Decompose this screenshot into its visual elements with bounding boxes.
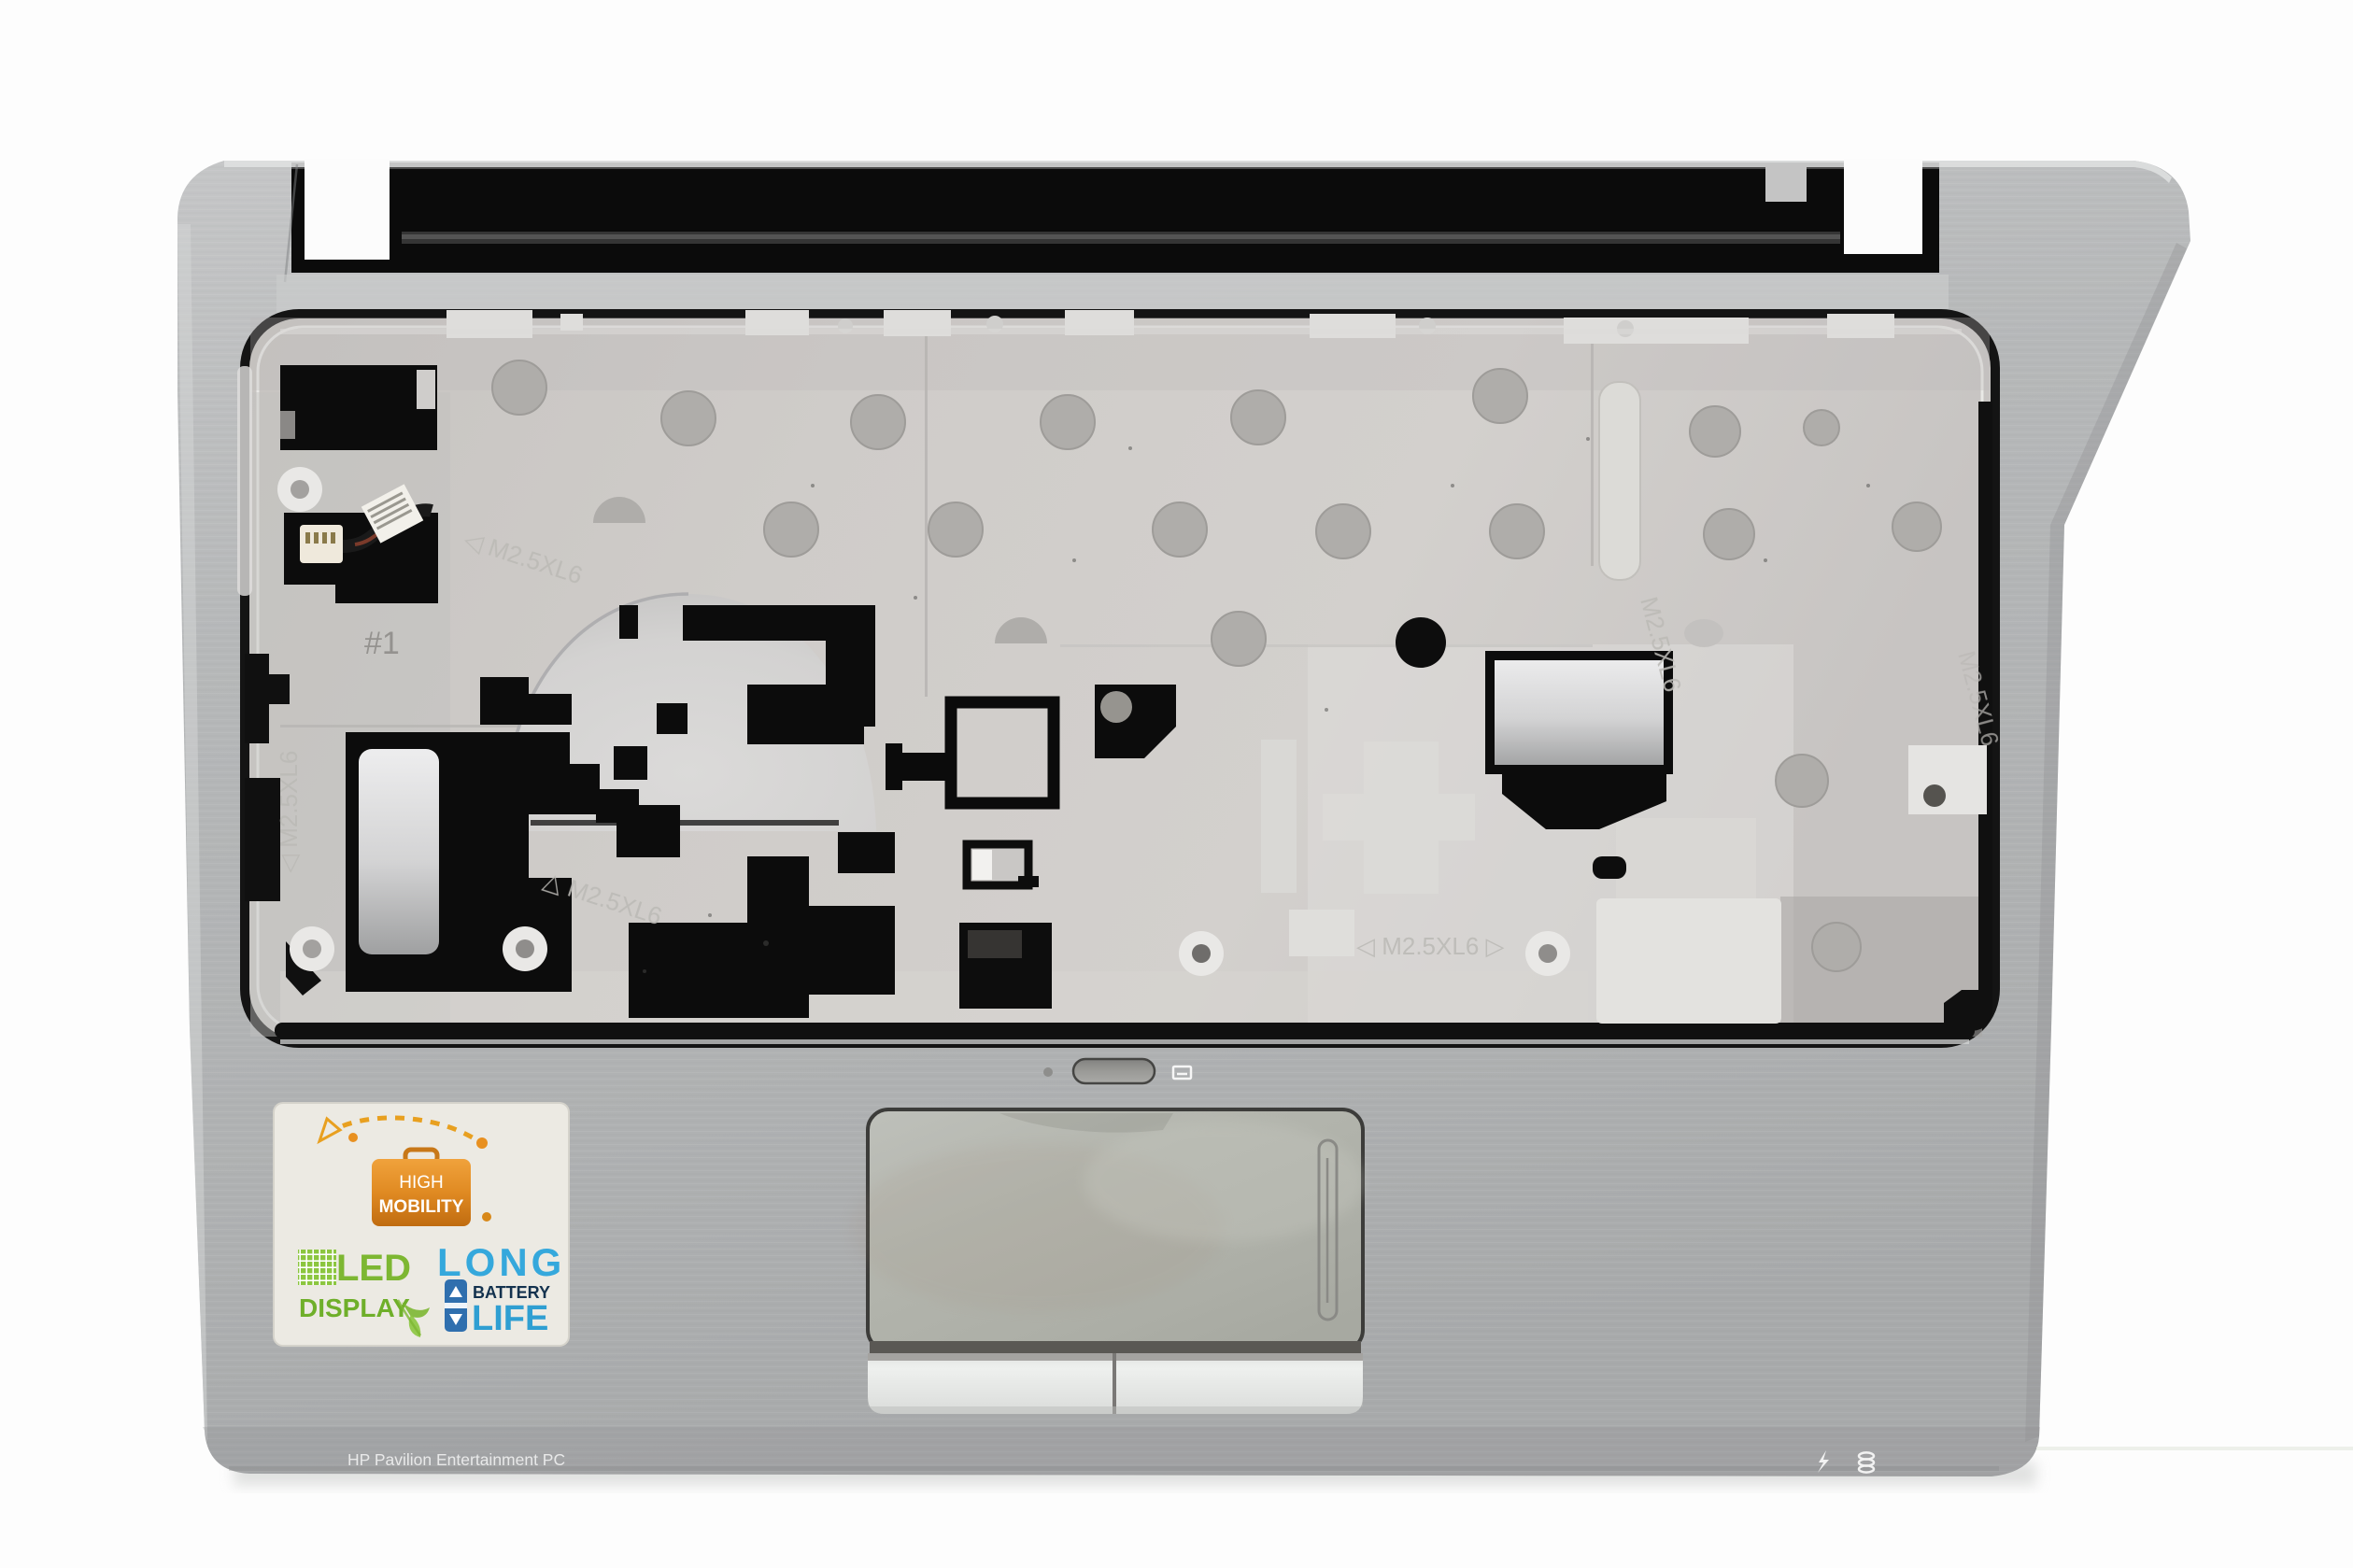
svg-text:LED: LED <box>336 1248 411 1289</box>
svg-text:LIFE: LIFE <box>472 1299 548 1338</box>
svg-text:#1: #1 <box>364 626 400 661</box>
svg-text:◁ M2.5XL6 ▷: ◁ M2.5XL6 ▷ <box>1356 932 1505 960</box>
svg-text:LONG: LONG <box>437 1240 565 1284</box>
svg-text:MOBILITY: MOBILITY <box>379 1197 464 1217</box>
svg-text:HIGH: HIGH <box>399 1173 444 1193</box>
svg-text:HP Pavilion Entertainment PC: HP Pavilion Entertainment PC <box>347 1450 565 1469</box>
svg-text:DISPLAY: DISPLAY <box>299 1293 410 1322</box>
svg-text:◁ M2.5XL6: ◁ M2.5XL6 <box>275 751 303 873</box>
